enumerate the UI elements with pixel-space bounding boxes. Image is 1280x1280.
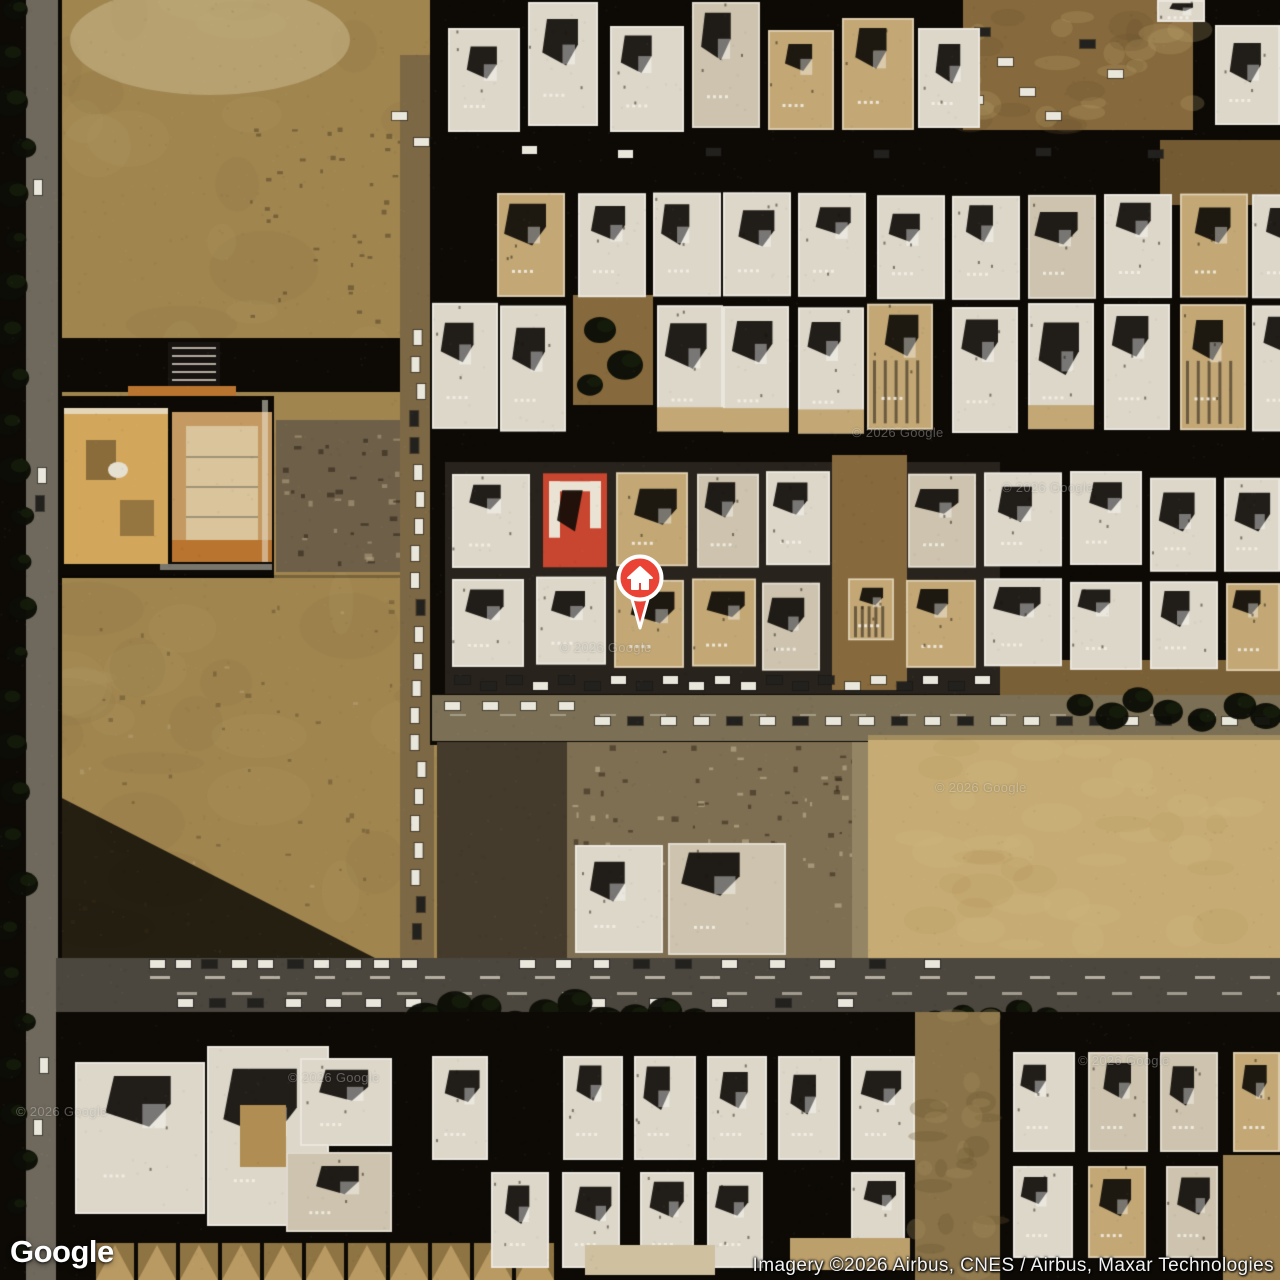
map-viewport[interactable]: © 2026 Google © 2026 Google © 2026 Googl… [0,0,1280,1280]
google-watermark: © 2026 Google [935,780,1027,795]
home-marker[interactable] [610,548,670,632]
google-watermark: © 2026 Google [288,1070,380,1085]
imagery-attribution: Imagery ©2026 Airbus, CNES / Airbus, Max… [753,1255,1274,1277]
google-watermark: © 2026 Google [1002,480,1094,495]
google-watermark: © 2026 Google [16,1104,108,1119]
google-watermark: © 2026 Google [1078,1053,1170,1068]
google-logo[interactable]: Google [10,1234,114,1270]
home-marker-pin [610,548,670,632]
google-watermark: © 2026 Google [852,425,944,440]
google-watermark: © 2026 Google [560,640,652,655]
